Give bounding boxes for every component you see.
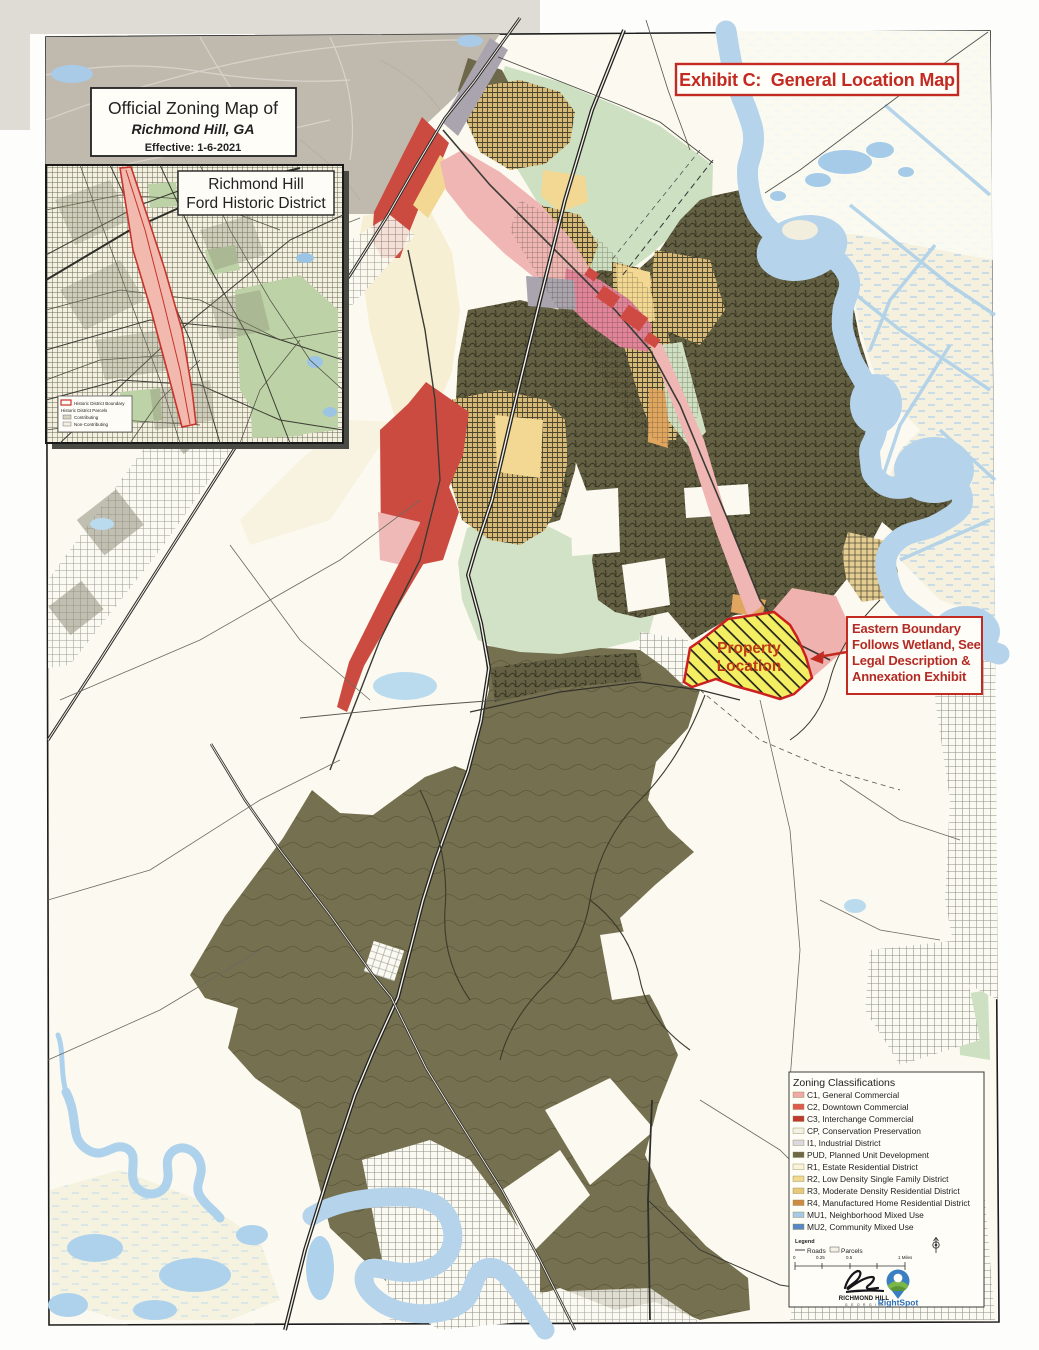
svg-text:MU2, Community Mixed Use: MU2, Community Mixed Use xyxy=(807,1222,914,1232)
svg-text:Contributing: Contributing xyxy=(74,415,99,420)
svg-text:Historic District Parcels: Historic District Parcels xyxy=(61,408,108,413)
svg-text:Richmond Hill: Richmond Hill xyxy=(208,176,304,193)
svg-text:Non-Contributing: Non-Contributing xyxy=(74,422,109,427)
svg-text:PUD, Planned Unit Development: PUD, Planned Unit Development xyxy=(807,1150,930,1160)
svg-text:Location: Location xyxy=(717,658,782,675)
svg-text:Historic District Boundary: Historic District Boundary xyxy=(74,401,125,406)
svg-text:R3, Moderate Density Residenti: R3, Moderate Density Residential Distric… xyxy=(807,1186,960,1196)
svg-text:Eastern Boundary: Eastern Boundary xyxy=(852,621,962,636)
svg-text:C1, General Commercial: C1, General Commercial xyxy=(807,1090,899,1100)
svg-text:Property: Property xyxy=(717,640,781,657)
svg-text:C2, Downtown Commercial: C2, Downtown Commercial xyxy=(807,1102,909,1112)
svg-text:0.5: 0.5 xyxy=(846,1255,853,1260)
svg-text:Legal Description &: Legal Description & xyxy=(852,653,970,668)
svg-text:R4, Manufactured Home Resident: R4, Manufactured Home Residential Distri… xyxy=(807,1198,971,1208)
svg-text:I1, Industrial District: I1, Industrial District xyxy=(807,1138,881,1148)
svg-text:1 Miles: 1 Miles xyxy=(898,1255,913,1260)
svg-text:Richmond Hill, GA: Richmond Hill, GA xyxy=(132,121,255,137)
svg-text:Official Zoning Map of: Official Zoning Map of xyxy=(108,98,278,118)
svg-text:R2, Low Density Single Family: R2, Low Density Single Family District xyxy=(807,1174,949,1184)
svg-text:Ford Historic District: Ford Historic District xyxy=(186,195,326,212)
svg-text:Effective: 1-6-2021: Effective: 1-6-2021 xyxy=(145,142,242,154)
svg-text:Exhibit C: General Location M: Exhibit C: General Location Map xyxy=(679,70,955,90)
svg-text:Follows Wetland, See: Follows Wetland, See xyxy=(852,637,981,652)
svg-text:R1, Estate Residential Distric: R1, Estate Residential District xyxy=(807,1162,918,1172)
svg-text:MU1, Neighborhood Mixed Use: MU1, Neighborhood Mixed Use xyxy=(807,1210,924,1220)
svg-text:CP, Conservation Preservation: CP, Conservation Preservation xyxy=(807,1126,921,1136)
svg-text:Roads: Roads xyxy=(807,1248,827,1255)
svg-text:RightSpot: RightSpot xyxy=(878,1298,919,1308)
svg-text:0.25: 0.25 xyxy=(816,1255,825,1260)
svg-text:Parcels: Parcels xyxy=(841,1248,863,1255)
svg-text:Zoning Classifications: Zoning Classifications xyxy=(793,1077,895,1089)
svg-text:Legend: Legend xyxy=(795,1239,815,1245)
svg-text:C3, Interchange Commercial: C3, Interchange Commercial xyxy=(807,1114,914,1124)
svg-text:Annexation Exhibit: Annexation Exhibit xyxy=(852,669,967,684)
